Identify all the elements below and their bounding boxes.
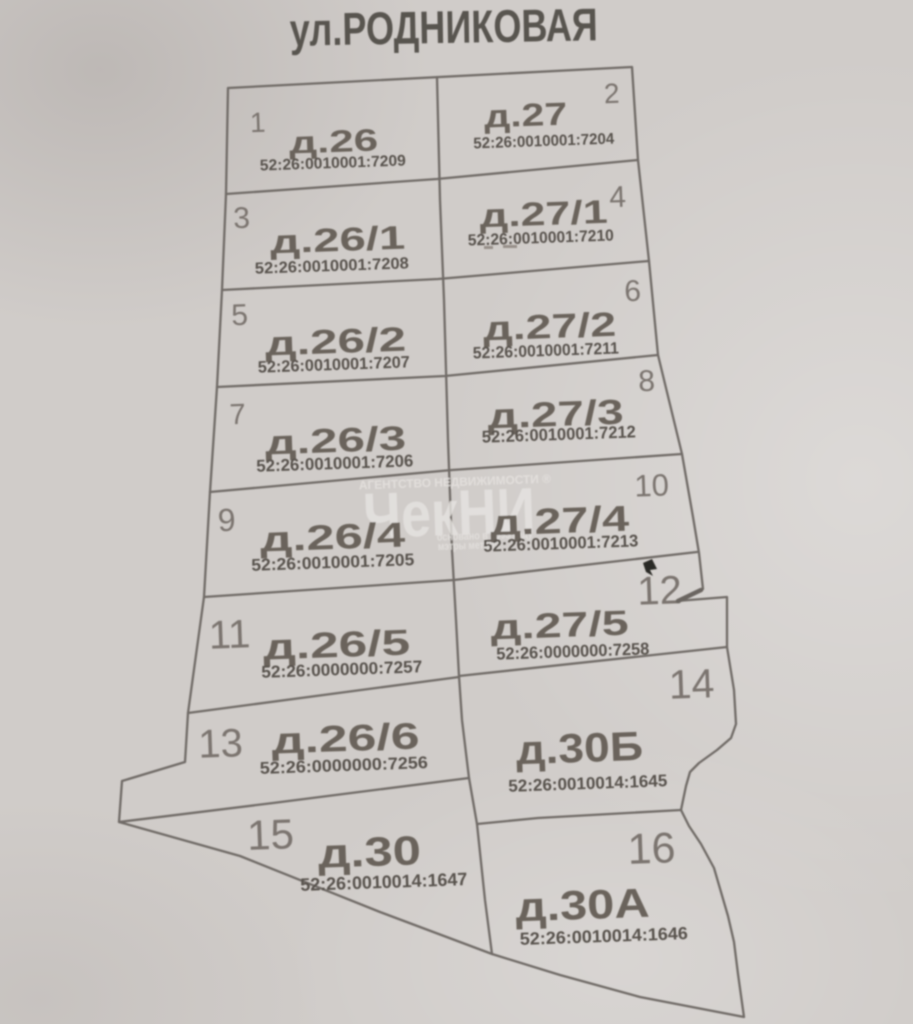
- svg-text:3: 3: [233, 202, 251, 236]
- svg-text:10: 10: [634, 467, 670, 503]
- svg-text:16: 16: [627, 824, 676, 874]
- svg-text:ул.РОДНИКОВАЯ: ул.РОДНИКОВАЯ: [289, 0, 598, 56]
- svg-text:4: 4: [609, 181, 627, 215]
- svg-text:5: 5: [231, 299, 249, 333]
- svg-text:6: 6: [624, 275, 642, 309]
- svg-text:д.30: д.30: [317, 827, 422, 877]
- svg-text:15: 15: [246, 810, 294, 859]
- svg-text:2: 2: [603, 78, 620, 110]
- svg-text:14: 14: [668, 660, 715, 708]
- svg-text:д.30Б: д.30Б: [515, 723, 644, 773]
- svg-text:1: 1: [249, 107, 266, 139]
- svg-text:8: 8: [638, 365, 656, 399]
- svg-text:д.26/1: д.26/1: [269, 219, 405, 261]
- svg-text:11: 11: [208, 612, 251, 657]
- svg-text:7: 7: [229, 399, 246, 432]
- svg-text:12: 12: [637, 568, 683, 614]
- svg-text:9: 9: [217, 502, 236, 539]
- svg-text:д.27: д.27: [484, 96, 568, 135]
- svg-text:13: 13: [198, 721, 244, 767]
- svg-text:д.30А: д.30А: [515, 880, 651, 931]
